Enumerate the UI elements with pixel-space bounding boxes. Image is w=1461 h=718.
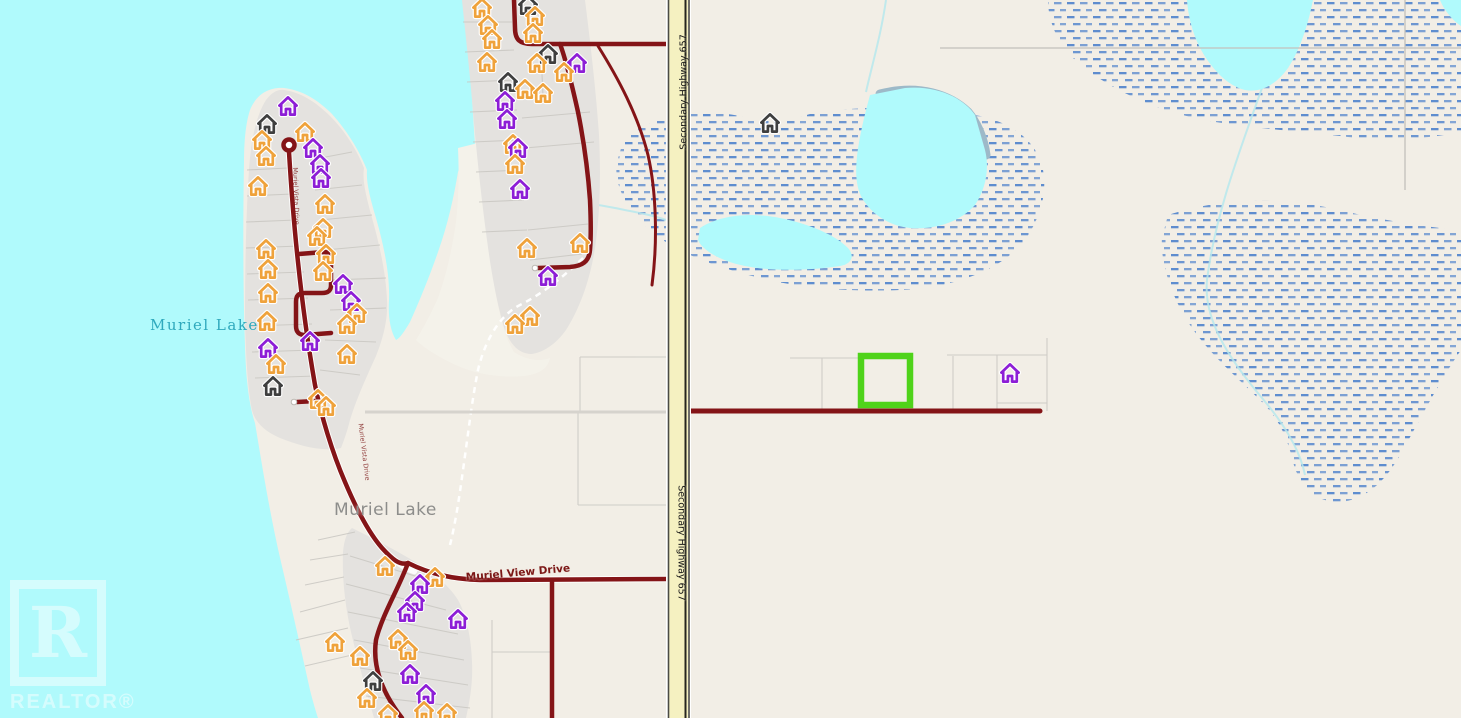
map-canvas[interactable] — [0, 0, 1461, 718]
highway-657 — [666, 0, 691, 718]
map-viewport[interactable]: Muriel Lake Muriel Lake Muriel View Driv… — [0, 0, 1461, 718]
